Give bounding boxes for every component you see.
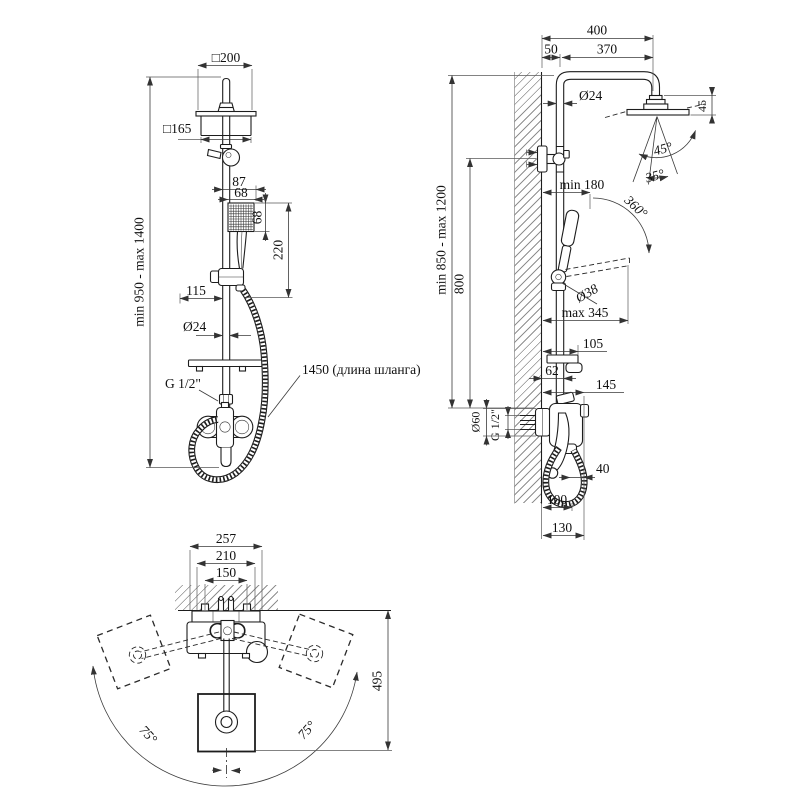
dim-label-115: 115	[186, 283, 206, 298]
dim-label-800: 800	[452, 274, 467, 295]
mounting-plate-top	[192, 597, 260, 623]
dim-label-130: 130	[552, 520, 573, 535]
dim-label-thread-front: G 1/2"	[165, 376, 201, 391]
overhead-shower-side	[605, 96, 705, 118]
side-view: 45° 35°	[434, 23, 717, 541]
dim-label-max345: max 345	[562, 305, 609, 320]
wall-section-side	[515, 72, 542, 539]
diverter-joint	[208, 145, 240, 167]
dim-label-supply-dia: Ø60	[469, 412, 483, 433]
dim-label-495: 495	[370, 671, 385, 692]
side-dimensions: 400 50 370 Ø24 45 min 180 360°	[434, 23, 717, 541]
dim-label-head-width: □200	[212, 50, 241, 65]
dim-label-62: 62	[545, 363, 559, 378]
dim-label-thread-side: G 1/2"	[488, 409, 502, 441]
angle-label-360: 360°	[621, 192, 651, 222]
dim-label-68-height: 68	[250, 211, 265, 225]
spray-cone: 45° 35°	[633, 117, 696, 186]
dim-label-pipe-dia-front: Ø24	[183, 319, 206, 334]
dim-label-head-height: 45	[695, 100, 709, 112]
top-view: 75° 75° 257 210 150 495	[93, 531, 392, 786]
hand-shower-side	[551, 209, 629, 290]
dim-label-handle-dia: Ø38	[572, 281, 601, 306]
spout-arm-top	[198, 639, 255, 779]
dim-label-min180: min 180	[560, 177, 605, 192]
dim-label-100: 100	[547, 492, 568, 507]
mixer-front	[197, 395, 253, 467]
wall-bracket	[527, 146, 570, 172]
dim-label-pipe-dia-side: Ø24	[579, 88, 602, 103]
dim-label-40: 40	[596, 461, 610, 476]
dim-label-145: 145	[596, 377, 617, 392]
angle-label-75-right: 75°	[295, 718, 319, 743]
dim-label-105: 105	[583, 336, 604, 351]
blueprint-canvas: □200 □165 87 68 68 2	[0, 0, 800, 800]
angle-label-75-left: 75°	[136, 722, 160, 747]
dim-label-370: 370	[597, 42, 618, 57]
angle-label-35: 35°	[643, 166, 667, 186]
shelf-front	[189, 360, 263, 371]
dim-label-68-width: 68	[234, 185, 248, 200]
dim-label-150: 150	[216, 565, 237, 580]
hose-length-note: 1450 (длина шланга)	[302, 362, 421, 377]
dim-label-400: 400	[587, 23, 608, 38]
front-view: □200 □165 87 68 68 2	[132, 50, 421, 480]
mixer-body-top	[187, 621, 268, 663]
dim-label-220: 220	[271, 240, 286, 261]
slider-holder	[211, 269, 246, 292]
dim-label-50: 50	[544, 42, 558, 57]
dim-label-height-range-side: min 850 - max 1200	[434, 185, 449, 295]
dim-label-head-body: □165	[163, 121, 192, 136]
dim-label-257: 257	[216, 531, 237, 546]
supply-connection	[520, 409, 550, 437]
technical-drawing: □200 □165 87 68 68 2	[0, 0, 800, 800]
dim-label-height-range-front: min 950 - max 1400	[132, 217, 147, 327]
front-dimensions: □200 □165 87 68 68 2	[132, 50, 421, 468]
overhead-shower-front	[196, 103, 256, 136]
dim-label-210: 210	[216, 548, 237, 563]
